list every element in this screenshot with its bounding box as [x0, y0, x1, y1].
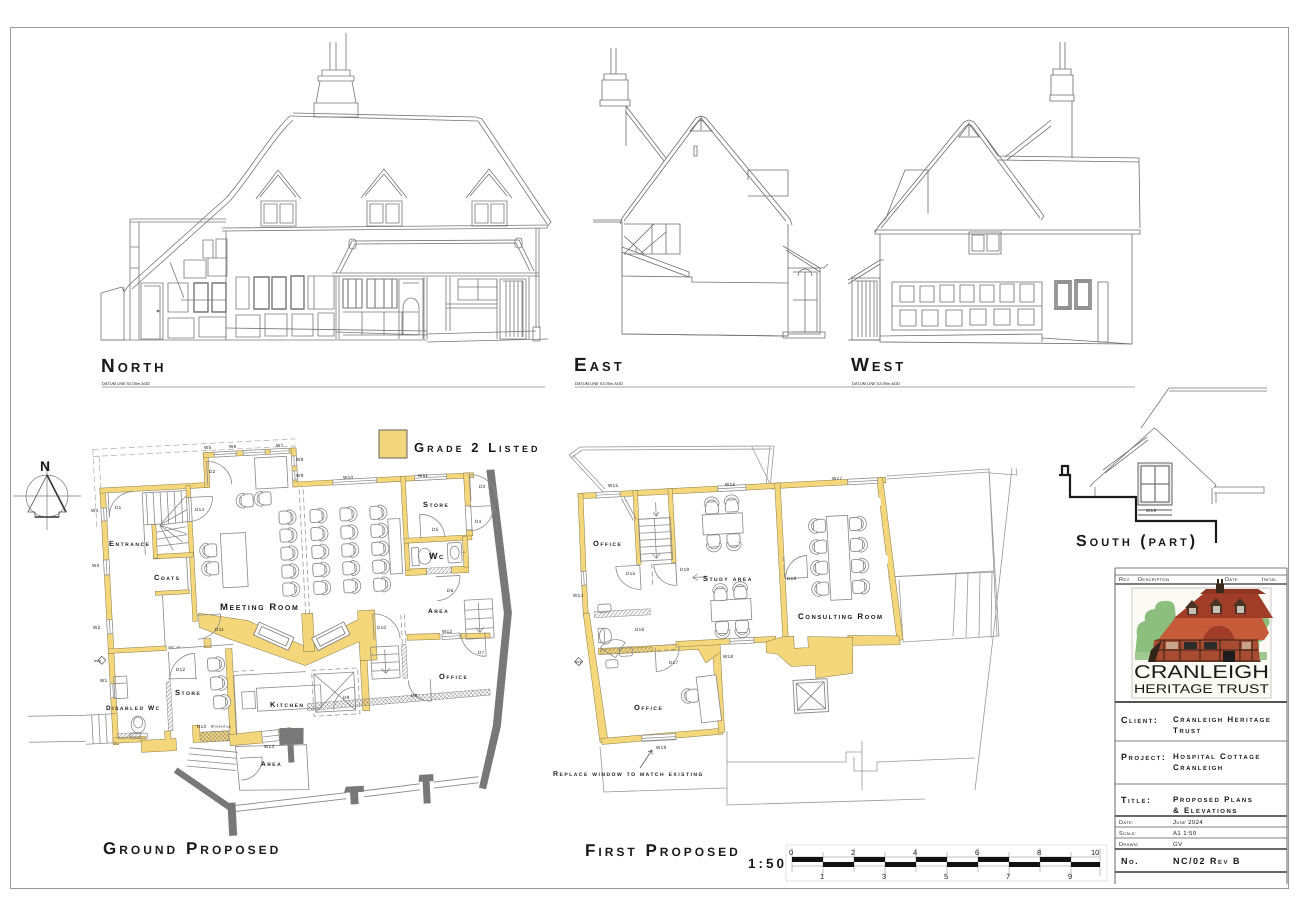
svg-text:W14: W14 — [573, 593, 583, 598]
svg-text:DATUM LINE 53.00m AOD: DATUM LINE 53.00m AOD — [852, 381, 900, 386]
svg-text:Entrance: Entrance — [109, 539, 150, 548]
svg-text:Office: Office — [439, 672, 468, 681]
svg-text:svp: svp — [94, 658, 102, 663]
svg-text:D4: D4 — [475, 519, 482, 524]
svg-text:W3: W3 — [92, 563, 100, 568]
svg-text:A1 1:50: A1 1:50 — [1173, 830, 1197, 837]
svg-text:W13: W13 — [264, 744, 274, 749]
svg-text:Rev: Rev — [1119, 577, 1130, 583]
svg-text:Store: Store — [175, 688, 201, 697]
svg-text:Wc: Wc — [429, 551, 445, 561]
svg-text:Scale:: Scale: — [1119, 831, 1137, 837]
svg-text:W11: W11 — [418, 473, 428, 478]
svg-text:Proposed Plans: Proposed Plans — [1173, 795, 1253, 804]
svg-text:Client:: Client: — [1121, 715, 1158, 725]
svg-text:Descripton: Descripton — [1138, 577, 1169, 583]
svg-text:DATUM LINE 53.00m AOD: DATUM LINE 53.00m AOD — [575, 381, 623, 386]
svg-text:W1: W1 — [100, 678, 108, 683]
svg-text:Blocked up: Blocked up — [211, 725, 231, 729]
svg-text:East: East — [574, 355, 625, 376]
svg-text:Replace window to match existi: Replace window to match existing — [553, 771, 704, 778]
svg-text:Cranleigh: Cranleigh — [1173, 763, 1224, 772]
svg-text:Grade 2 Listed: Grade 2 Listed — [414, 440, 541, 455]
svg-text:4: 4 — [913, 848, 917, 857]
svg-text:W19: W19 — [656, 745, 666, 750]
svg-text:South (part): South (part) — [1076, 533, 1198, 550]
svg-text:D13: D13 — [197, 724, 206, 729]
svg-text:HERITAGE TRUST: HERITAGE TRUST — [1134, 682, 1269, 696]
svg-text:Date: Date — [1225, 577, 1238, 583]
svg-text:8: 8 — [1037, 848, 1041, 857]
svg-text:D18: D18 — [680, 567, 689, 572]
svg-text:CRANLEIGH: CRANLEIGH — [1134, 661, 1269, 682]
svg-text:svp: svp — [575, 659, 583, 664]
svg-text:Hospital Cottage: Hospital Cottage — [1173, 752, 1261, 761]
svg-text:D8: D8 — [411, 693, 418, 698]
svg-text:First Proposed: First Proposed — [585, 841, 741, 860]
svg-text:5: 5 — [944, 872, 948, 881]
svg-text:W4: W4 — [91, 508, 99, 513]
svg-text:W16: W16 — [725, 482, 735, 487]
svg-text:Study area: Study area — [703, 574, 753, 583]
svg-text:GV: GV — [1173, 841, 1182, 848]
svg-text:W18: W18 — [723, 654, 733, 659]
svg-text:W17: W17 — [832, 476, 842, 481]
svg-text:W5: W5 — [204, 445, 212, 450]
svg-text:D6: D6 — [447, 588, 454, 593]
svg-text:W7: W7 — [276, 443, 284, 448]
svg-text:W10: W10 — [343, 475, 353, 480]
svg-text:W6: W6 — [229, 444, 237, 449]
svg-text:D7: D7 — [478, 650, 485, 655]
svg-text:10: 10 — [1091, 848, 1099, 857]
svg-text:D9: D9 — [343, 695, 350, 700]
svg-text:D14: D14 — [195, 507, 204, 512]
svg-text:Date:: Date: — [1119, 820, 1134, 826]
svg-text:D5: D5 — [432, 527, 439, 532]
svg-text:D15: D15 — [626, 571, 635, 576]
svg-text:W12: W12 — [442, 629, 452, 634]
svg-text:& Elevations: & Elevations — [1173, 806, 1238, 815]
svg-text:Cranleigh Heritage: Cranleigh Heritage — [1173, 715, 1271, 724]
svg-text:7: 7 — [1006, 872, 1010, 881]
svg-text:W8: W8 — [296, 457, 304, 462]
svg-text:3: 3 — [882, 872, 886, 881]
svg-text:Area: Area — [261, 761, 282, 768]
svg-text:Trust: Trust — [1173, 726, 1202, 735]
svg-text:D19: D19 — [787, 576, 796, 581]
svg-text:D16: D16 — [635, 627, 644, 632]
svg-text:Title:: Title: — [1121, 795, 1152, 805]
svg-text:W2: W2 — [93, 625, 101, 630]
svg-text:1: 1 — [820, 872, 824, 881]
svg-text:North: North — [101, 356, 167, 377]
svg-text:D3: D3 — [479, 484, 486, 489]
svg-text:Disabled Wc: Disabled Wc — [106, 705, 161, 712]
svg-text:June 2024: June 2024 — [1173, 819, 1203, 826]
svg-text:D17: D17 — [669, 660, 678, 665]
svg-text:No.: No. — [1121, 856, 1139, 866]
svg-text:Project:: Project: — [1121, 752, 1166, 762]
svg-text:Office: Office — [593, 539, 622, 548]
svg-text:2: 2 — [851, 848, 855, 857]
svg-text:NC/02 Rev B: NC/02 Rev B — [1173, 856, 1241, 866]
svg-text:D12: D12 — [176, 667, 185, 672]
svg-text:D10: D10 — [377, 625, 386, 630]
svg-text:DATUM LINE 53.00m AOD: DATUM LINE 53.00m AOD — [102, 381, 150, 386]
svg-text:Kitchen: Kitchen — [270, 700, 305, 709]
svg-text:Office: Office — [634, 703, 663, 712]
svg-text:Meeting Room: Meeting Room — [220, 602, 299, 613]
svg-text:6: 6 — [975, 848, 979, 857]
svg-text:D2: D2 — [209, 469, 216, 474]
svg-text:Consulting Room: Consulting Room — [798, 612, 884, 621]
svg-text:Drawn:: Drawn: — [1119, 842, 1139, 848]
svg-text:W9: W9 — [296, 473, 304, 478]
svg-text:N: N — [40, 458, 50, 474]
svg-text:Ground Proposed: Ground Proposed — [103, 839, 281, 858]
svg-text:9: 9 — [1068, 872, 1072, 881]
svg-text:1:50: 1:50 — [748, 856, 787, 871]
svg-text:Store: Store — [423, 500, 449, 509]
svg-text:Area: Area — [428, 608, 449, 615]
svg-text:D11: D11 — [215, 627, 224, 632]
svg-text:West: West — [851, 355, 906, 376]
svg-text:0: 0 — [789, 848, 793, 857]
svg-text:Inital: Inital — [1262, 577, 1277, 583]
svg-text:W19: W19 — [1146, 508, 1157, 513]
svg-text:D1: D1 — [115, 505, 122, 510]
svg-text:Coats: Coats — [154, 573, 180, 582]
svg-text:W15: W15 — [608, 483, 618, 488]
